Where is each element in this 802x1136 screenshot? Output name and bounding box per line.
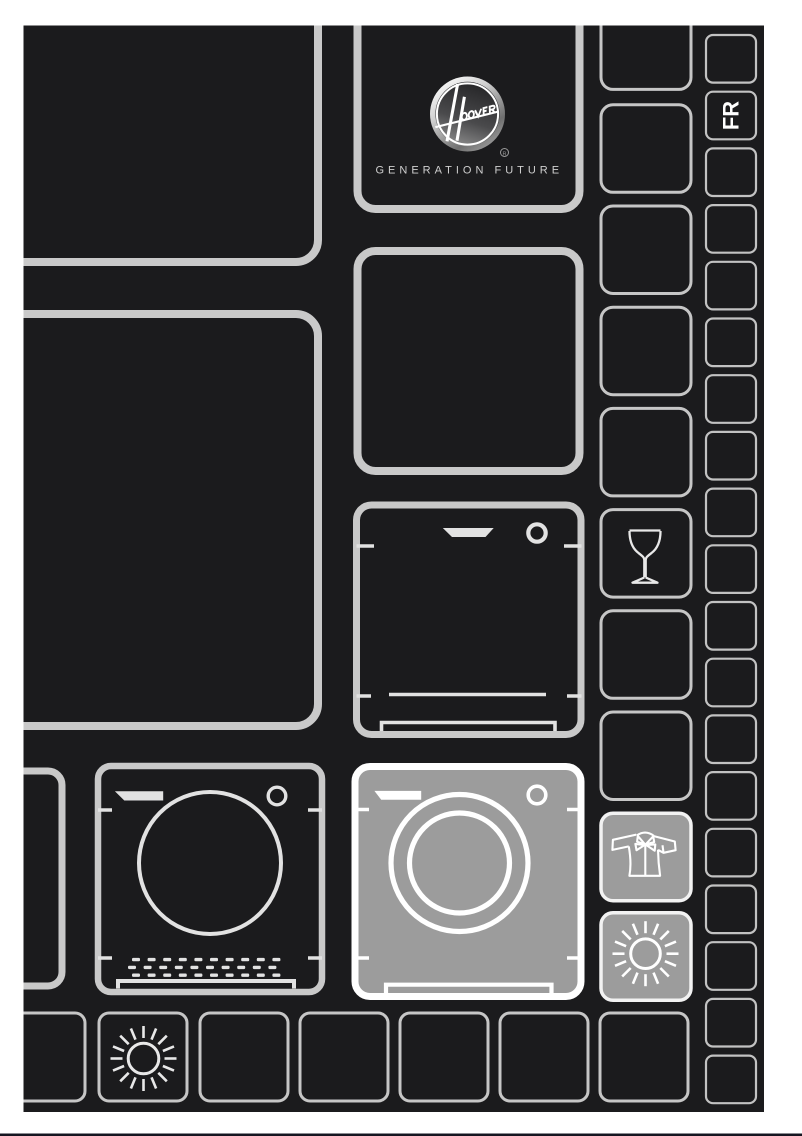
svg-text:R: R <box>503 151 507 157</box>
svg-text:FR: FR <box>719 101 744 130</box>
svg-text:GENERATION FUTURE: GENERATION FUTURE <box>376 165 564 177</box>
